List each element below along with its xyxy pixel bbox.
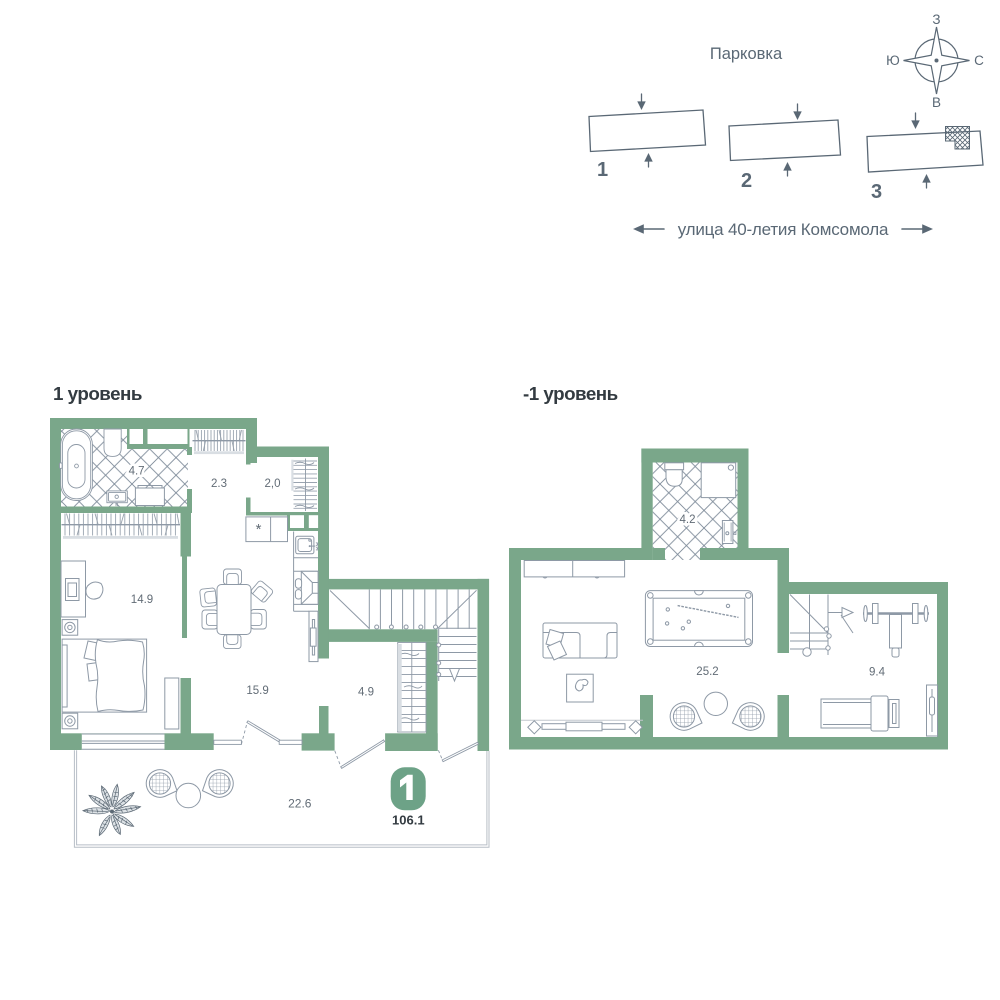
svg-text:106.1: 106.1	[392, 813, 425, 828]
svg-text:15.9: 15.9	[246, 685, 268, 697]
svg-text:14.9: 14.9	[131, 594, 153, 606]
svg-text:З: З	[932, 12, 940, 27]
svg-text:22.6: 22.6	[288, 796, 312, 810]
svg-text:улица 40-летия Комсомола: улица 40-летия Комсомола	[678, 220, 889, 239]
svg-text:*: *	[256, 521, 262, 538]
svg-text:4.9: 4.9	[358, 686, 374, 698]
svg-text:2.3: 2.3	[211, 478, 227, 490]
svg-text:3: 3	[871, 181, 882, 203]
svg-text:Парковка: Парковка	[710, 45, 783, 63]
svg-text:2: 2	[741, 170, 752, 192]
svg-text:4.7: 4.7	[129, 466, 145, 478]
svg-text:2,0: 2,0	[265, 478, 281, 490]
svg-text:С: С	[974, 53, 984, 68]
svg-text:Ю: Ю	[886, 53, 900, 68]
svg-text:1: 1	[597, 159, 608, 181]
svg-text:-1 уровень: -1 уровень	[523, 383, 618, 404]
svg-text:4.2: 4.2	[680, 514, 696, 526]
svg-text:9.4: 9.4	[869, 667, 886, 679]
svg-text:В: В	[932, 95, 941, 110]
svg-text:25.2: 25.2	[696, 666, 718, 678]
svg-text:1 уровень: 1 уровень	[53, 383, 142, 404]
